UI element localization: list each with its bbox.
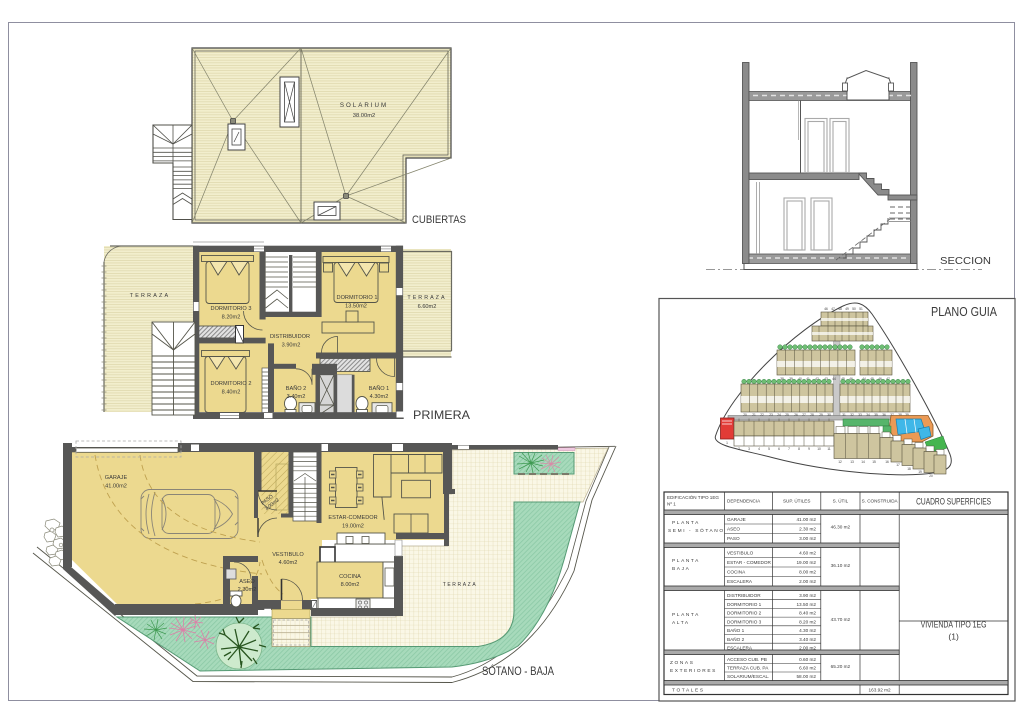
svg-text:ESTAR - COMEDOR: ESTAR - COMEDOR xyxy=(727,560,772,565)
svg-text:EXTERIORES: EXTERIORES xyxy=(670,668,717,674)
svg-text:28: 28 xyxy=(810,413,814,417)
svg-text:SECCION: SECCION xyxy=(940,255,991,267)
svg-text:3.00 m2: 3.00 m2 xyxy=(799,536,816,541)
svg-text:DORMITORIO 1: DORMITORIO 1 xyxy=(337,295,378,301)
svg-text:DORMITORIO 2: DORMITORIO 2 xyxy=(727,611,762,616)
svg-text:25: 25 xyxy=(785,413,789,417)
svg-text:DISTRIBUIDOR: DISTRIBUIDOR xyxy=(727,593,761,598)
svg-text:PLANO GUIA: PLANO GUIA xyxy=(931,305,998,319)
svg-text:32: 32 xyxy=(850,413,854,417)
svg-text:8.00 m2: 8.00 m2 xyxy=(799,570,816,575)
svg-text:51: 51 xyxy=(859,307,863,311)
svg-text:2.30 m2: 2.30 m2 xyxy=(799,527,816,532)
svg-text:19.00 m2: 19.00 m2 xyxy=(796,560,816,565)
svg-text:8.20 m2: 8.20 m2 xyxy=(799,619,816,624)
svg-text:10: 10 xyxy=(817,447,821,451)
svg-text:PLANTA: PLANTA xyxy=(672,612,700,618)
svg-text:8.40m2: 8.40m2 xyxy=(222,390,241,396)
svg-text:SOLARIUM: SOLARIUM xyxy=(340,102,388,109)
svg-text:58.00 m2: 58.00 m2 xyxy=(796,674,816,679)
svg-text:DORMITORIO 3: DORMITORIO 3 xyxy=(211,306,252,312)
svg-text:19: 19 xyxy=(918,470,922,474)
svg-text:(1): (1) xyxy=(948,632,959,642)
svg-text:17: 17 xyxy=(896,463,900,467)
svg-text:47: 47 xyxy=(831,307,835,311)
svg-text:BAJA: BAJA xyxy=(672,566,690,572)
svg-text:9: 9 xyxy=(808,447,810,451)
svg-text:20: 20 xyxy=(743,413,747,417)
svg-text:VIVIENDA TIPO 1EG: VIVIENDA TIPO 1EG xyxy=(921,620,987,631)
svg-text:VESTIBULO: VESTIBULO xyxy=(727,551,754,556)
svg-text:13.50m2: 13.50m2 xyxy=(345,304,367,310)
svg-text:8.00m2: 8.00m2 xyxy=(341,582,360,588)
svg-text:7: 7 xyxy=(788,447,790,451)
svg-text:41.00m2: 41.00m2 xyxy=(105,484,127,490)
svg-text:26: 26 xyxy=(794,413,798,417)
svg-text:4.60m2: 4.60m2 xyxy=(279,560,298,566)
svg-text:163.92 m2: 163.92 m2 xyxy=(869,688,892,693)
svg-text:TERRAZA: TERRAZA xyxy=(443,582,478,588)
svg-text:33: 33 xyxy=(858,413,862,417)
svg-text:43.70 m2: 43.70 m2 xyxy=(831,617,851,622)
svg-text:DORMITORIO 3: DORMITORIO 3 xyxy=(727,619,762,624)
svg-text:CUBIERTAS: CUBIERTAS xyxy=(412,214,466,226)
svg-text:3.40m2: 3.40m2 xyxy=(287,394,306,400)
svg-text:3.40 m2: 3.40 m2 xyxy=(799,637,816,642)
svg-text:TERRAZA: TERRAZA xyxy=(407,295,446,301)
svg-text:23: 23 xyxy=(769,413,773,417)
svg-text:S. ÚTIL: S. ÚTIL xyxy=(833,498,849,504)
svg-text:PASO: PASO xyxy=(727,536,740,541)
svg-text:PLANTA: PLANTA xyxy=(672,558,700,564)
svg-text:44: 44 xyxy=(832,377,836,381)
svg-text:30: 30 xyxy=(827,413,831,417)
svg-text:TOTALES: TOTALES xyxy=(672,688,705,694)
svg-text:5: 5 xyxy=(768,447,770,451)
svg-text:1: 1 xyxy=(726,441,728,445)
svg-text:ASEO: ASEO xyxy=(239,579,255,585)
svg-text:36: 36 xyxy=(882,413,886,417)
svg-text:ASEO: ASEO xyxy=(727,527,740,532)
svg-text:34: 34 xyxy=(866,413,870,417)
svg-text:EDIFICACIÓN TIPO 1EG: EDIFICACIÓN TIPO 1EG xyxy=(667,494,719,500)
svg-text:3.90 m2: 3.90 m2 xyxy=(799,593,816,598)
svg-text:4: 4 xyxy=(758,447,760,451)
svg-text:PLANTA: PLANTA xyxy=(672,520,700,526)
svg-text:65.20 m2: 65.20 m2 xyxy=(831,664,851,669)
svg-text:BAÑO 1: BAÑO 1 xyxy=(369,385,390,392)
svg-text:2.00 m2: 2.00 m2 xyxy=(799,579,816,584)
svg-text:ZONAS: ZONAS xyxy=(670,660,695,666)
svg-text:S. CONSTRUIDA: S. CONSTRUIDA xyxy=(862,499,899,504)
svg-text:4.30 m2: 4.30 m2 xyxy=(799,628,816,633)
svg-text:8: 8 xyxy=(798,447,800,451)
svg-text:TERRAZA CUB. PA: TERRAZA CUB. PA xyxy=(727,666,769,671)
svg-text:DISTRIBUIDOR: DISTRIBUIDOR xyxy=(270,334,310,340)
svg-text:18: 18 xyxy=(907,467,911,471)
svg-text:49: 49 xyxy=(845,307,849,311)
svg-text:SEMI - SÓTANO: SEMI - SÓTANO xyxy=(668,527,725,534)
svg-text:3.90m2: 3.90m2 xyxy=(282,343,301,349)
svg-text:11: 11 xyxy=(827,447,831,451)
svg-text:COCINA: COCINA xyxy=(339,574,361,580)
svg-text:2.30m2: 2.30m2 xyxy=(238,587,257,593)
svg-text:SÓTANO - BAJA: SÓTANO - BAJA xyxy=(482,665,554,678)
svg-text:Nº 1: Nº 1 xyxy=(667,502,676,507)
svg-text:TERRAZA: TERRAZA xyxy=(130,293,171,299)
svg-text:ESCALERA: ESCALERA xyxy=(727,579,753,584)
svg-text:13: 13 xyxy=(850,460,854,464)
svg-text:36.10 m2: 36.10 m2 xyxy=(831,563,851,568)
svg-text:4.60 m2: 4.60 m2 xyxy=(799,551,816,556)
svg-text:6: 6 xyxy=(778,447,780,451)
svg-text:6.60 m2: 6.60 m2 xyxy=(799,666,816,671)
svg-text:29: 29 xyxy=(819,413,823,417)
svg-text:ESTAR-COMEDOR: ESTAR-COMEDOR xyxy=(328,515,377,521)
svg-text:8.40 m2: 8.40 m2 xyxy=(799,611,816,616)
svg-text:2: 2 xyxy=(738,447,740,451)
svg-text:8.20m2: 8.20m2 xyxy=(222,315,241,321)
svg-text:16: 16 xyxy=(885,460,889,464)
svg-text:2.00 m2: 2.00 m2 xyxy=(799,646,816,651)
svg-text:12: 12 xyxy=(838,460,842,464)
svg-text:GARAJE: GARAJE xyxy=(105,475,128,481)
svg-text:BAÑO 2: BAÑO 2 xyxy=(286,385,307,392)
svg-text:24: 24 xyxy=(777,413,781,417)
svg-text:22: 22 xyxy=(760,413,764,417)
svg-text:0.60 m2: 0.60 m2 xyxy=(799,657,816,662)
svg-text:VESTIBULO: VESTIBULO xyxy=(272,552,304,558)
svg-text:6.60m2: 6.60m2 xyxy=(418,304,437,310)
svg-text:ALTA: ALTA xyxy=(672,620,690,626)
svg-text:15: 15 xyxy=(872,460,876,464)
svg-text:DEPENDENCIA: DEPENDENCIA xyxy=(727,499,761,504)
svg-text:31: 31 xyxy=(842,413,846,417)
svg-text:DORMITORIO 2: DORMITORIO 2 xyxy=(211,381,252,387)
svg-text:COCINA: COCINA xyxy=(727,570,746,575)
svg-text:21: 21 xyxy=(752,413,756,417)
svg-text:19.00m2: 19.00m2 xyxy=(342,524,364,530)
svg-text:38.00m2: 38.00m2 xyxy=(353,113,376,119)
svg-text:BAÑO 1: BAÑO 1 xyxy=(727,627,745,633)
svg-text:GARAJE: GARAJE xyxy=(727,517,746,522)
svg-text:DORMITORIO 1: DORMITORIO 1 xyxy=(727,602,762,607)
svg-text:3: 3 xyxy=(748,447,750,451)
svg-text:14: 14 xyxy=(861,460,865,464)
svg-text:SOLARIUM/ESCAL.: SOLARIUM/ESCAL. xyxy=(727,674,769,679)
svg-text:ESCALERA: ESCALERA xyxy=(727,646,753,651)
svg-text:13.50 m2: 13.50 m2 xyxy=(796,602,816,607)
svg-text:27: 27 xyxy=(802,413,806,417)
svg-text:35: 35 xyxy=(874,413,878,417)
svg-text:50: 50 xyxy=(852,307,856,311)
svg-text:48: 48 xyxy=(838,307,842,311)
svg-text:SUP. ÚTILES: SUP. ÚTILES xyxy=(783,498,811,504)
svg-text:ACCESO CUB. PB: ACCESO CUB. PB xyxy=(727,657,767,662)
svg-text:46: 46 xyxy=(824,307,828,311)
svg-text:46.30 m2: 46.30 m2 xyxy=(831,525,851,530)
svg-text:PRIMERA: PRIMERA xyxy=(413,410,470,422)
svg-text:41.00 m2: 41.00 m2 xyxy=(796,517,816,522)
svg-text:BAÑO 2: BAÑO 2 xyxy=(727,636,745,642)
svg-text:4.30m2: 4.30m2 xyxy=(370,394,389,400)
svg-text:20: 20 xyxy=(929,474,933,478)
svg-text:CUADRO SUPERFICIES: CUADRO SUPERFICIES xyxy=(916,497,991,507)
